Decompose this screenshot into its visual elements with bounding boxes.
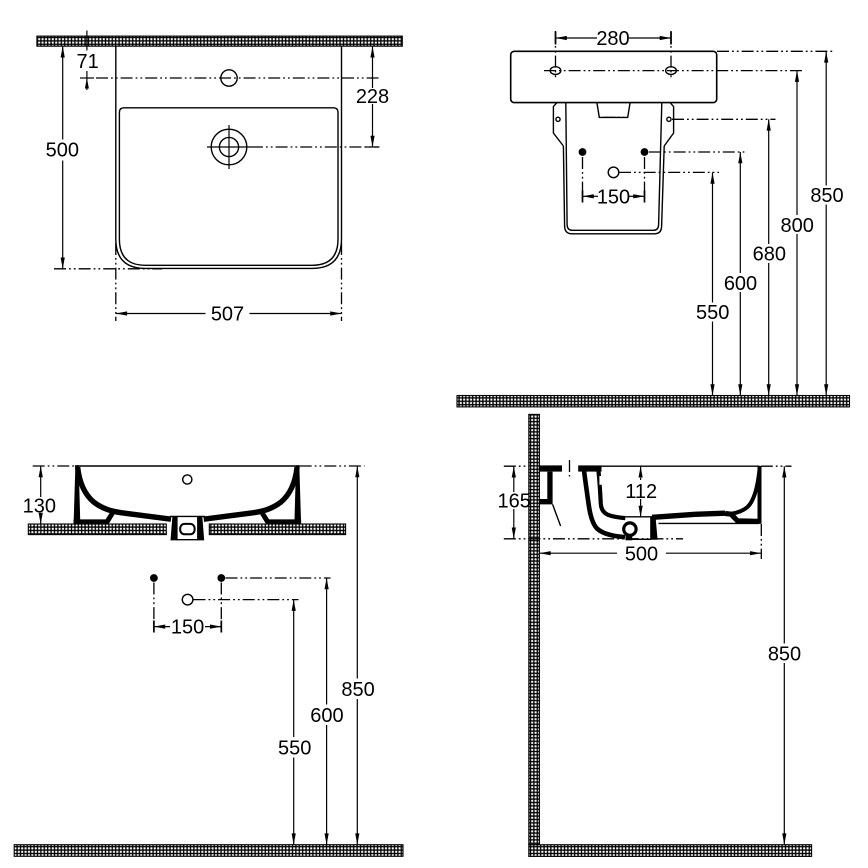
svg-text:680: 680 <box>753 244 786 266</box>
svg-text:71: 71 <box>76 51 98 73</box>
svg-text:507: 507 <box>211 304 244 326</box>
svg-text:228: 228 <box>356 86 389 108</box>
svg-text:800: 800 <box>781 215 814 237</box>
svg-text:850: 850 <box>768 643 801 665</box>
svg-text:550: 550 <box>696 302 729 324</box>
svg-text:165: 165 <box>498 491 531 513</box>
svg-text:280: 280 <box>596 28 629 50</box>
svg-text:150: 150 <box>597 186 630 208</box>
svg-text:130: 130 <box>23 495 56 517</box>
svg-text:850: 850 <box>341 679 374 701</box>
svg-text:500: 500 <box>46 140 79 162</box>
svg-text:112: 112 <box>625 481 657 503</box>
svg-text:600: 600 <box>724 273 757 295</box>
svg-text:550: 550 <box>278 737 311 759</box>
svg-text:600: 600 <box>310 705 343 727</box>
svg-text:850: 850 <box>810 185 843 207</box>
svg-text:150: 150 <box>171 617 204 639</box>
svg-text:500: 500 <box>625 543 658 565</box>
